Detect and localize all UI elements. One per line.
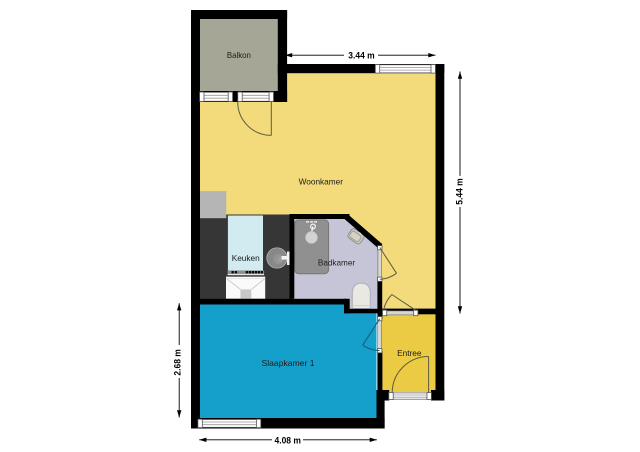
svg-text:Badkamer: Badkamer (318, 258, 355, 268)
svg-text:Keuken: Keuken (232, 253, 260, 263)
svg-text:Entree: Entree (397, 348, 422, 358)
svg-text:Slaapkamer 1: Slaapkamer 1 (262, 358, 315, 368)
svg-text:5.44 m: 5.44 m (454, 178, 464, 204)
svg-text:2.68 m: 2.68 m (172, 349, 182, 375)
svg-text:Balkon: Balkon (227, 50, 251, 60)
svg-text:3.44 m: 3.44 m (348, 50, 374, 60)
svg-text:Woonkamer: Woonkamer (299, 177, 344, 187)
svg-text:4.08 m: 4.08 m (275, 435, 301, 445)
